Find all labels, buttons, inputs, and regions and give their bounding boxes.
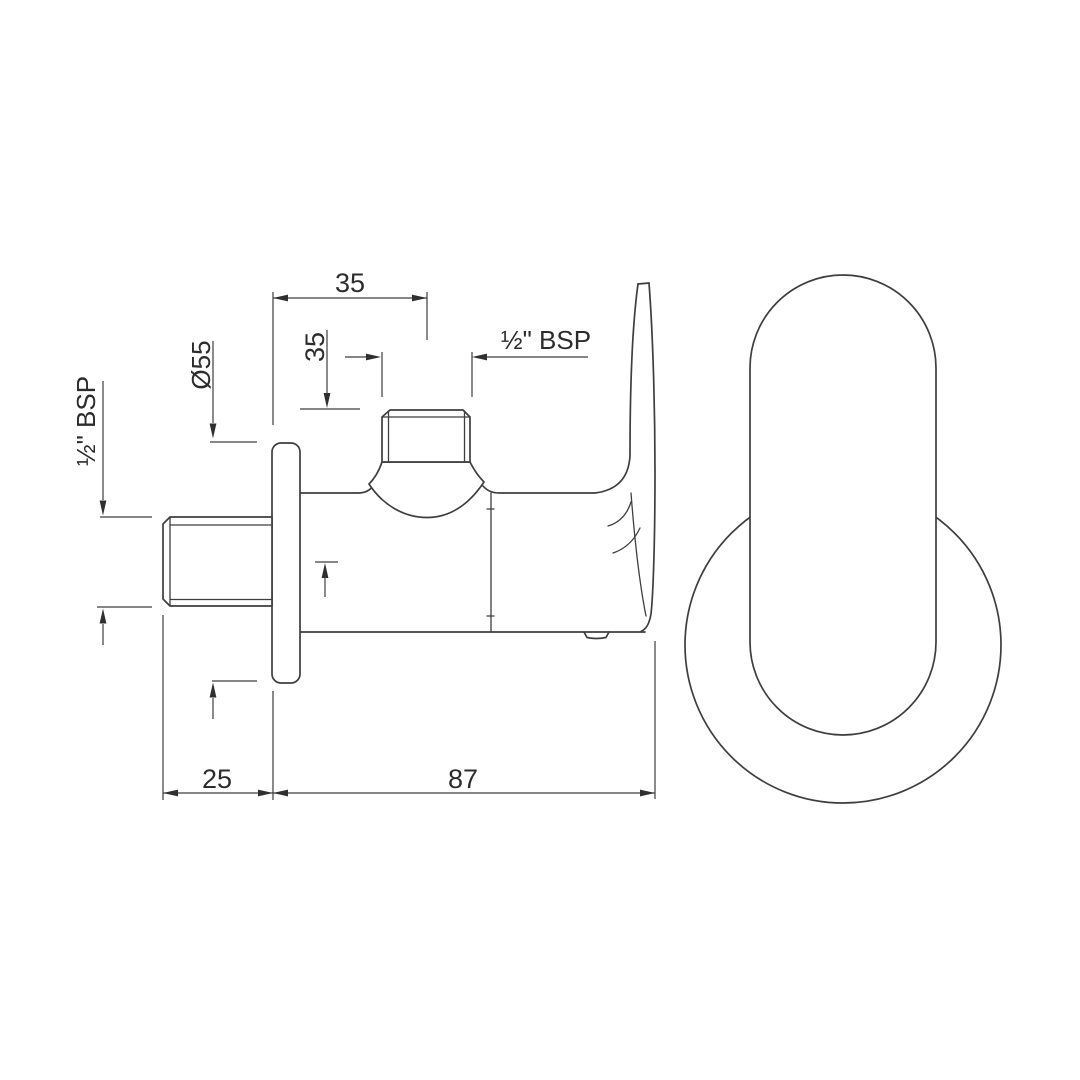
arrow-up-icon	[100, 609, 107, 624]
technical-drawing-page: 35 35 ½" BSP ½" BSP Ø55	[0, 0, 1080, 1080]
callout-outlet-thread: ½" BSP	[345, 325, 591, 397]
callout-inlet-thread: ½" BSP	[71, 376, 152, 645]
arrow-right-icon	[640, 790, 655, 797]
dim-outlet-height-value: 35	[300, 332, 330, 362]
inlet-pipe-outline	[163, 517, 272, 606]
outlet-dome	[369, 462, 484, 518]
arrow-right-icon	[366, 354, 381, 361]
arrow-down-icon	[210, 424, 217, 439]
dim-overall-length-value: 87	[448, 764, 478, 794]
callout-inlet-thread-lines	[97, 381, 152, 645]
handle-tip-edge	[638, 283, 649, 284]
arrow-left-icon	[163, 790, 178, 797]
arrow-left-icon	[273, 790, 288, 797]
body-top-edge-right-and-handle-left-edge	[483, 284, 638, 493]
dimensions: 35 35 ½" BSP ½" BSP Ø55	[71, 268, 655, 800]
dim-flange-diameter-value: Ø55	[186, 340, 216, 389]
dim-bottom-lines	[163, 615, 655, 800]
dim-outlet-height-lines	[300, 330, 360, 597]
dim-top-offset: 35	[273, 268, 427, 425]
dim-top-offset-value: 35	[335, 268, 365, 298]
outlet-port	[369, 410, 484, 518]
handle-right-edge	[641, 283, 655, 632]
handle-base-contour	[631, 493, 646, 616]
dim-wall-clearance-value: 25	[202, 764, 232, 794]
front-view	[685, 275, 1001, 803]
arrow-up-icon	[322, 563, 329, 578]
handle-lever-side	[608, 283, 655, 632]
set-screw-bump	[584, 632, 609, 639]
body-top-edge-left	[300, 486, 373, 493]
arrow-left-icon	[472, 354, 487, 361]
arrow-down-icon	[100, 501, 107, 516]
arrow-right-icon	[258, 790, 273, 797]
wall-flange-side	[272, 443, 300, 683]
arrow-right-icon	[412, 295, 427, 302]
valve-body	[300, 284, 645, 639]
handle-swoosh-arc-1	[608, 502, 631, 526]
angle-valve-drawing: 35 35 ½" BSP ½" BSP Ø55	[0, 0, 1080, 1080]
dim-top-offset-lines	[273, 292, 427, 425]
dim-bottom-lengths: 25 87	[163, 615, 655, 800]
callout-outlet-thread-lines	[345, 352, 588, 397]
outlet-thread	[382, 410, 470, 462]
arrow-up-icon	[210, 683, 217, 698]
arrow-down-icon	[324, 393, 331, 408]
body-joint-line	[487, 493, 494, 632]
callout-inlet-thread-value: ½" BSP	[71, 376, 101, 466]
dim-outlet-height: 35	[300, 330, 360, 597]
handle-pill	[750, 275, 936, 735]
inlet-pipe	[163, 517, 272, 606]
arrow-left-icon	[273, 295, 288, 302]
callout-outlet-thread-value: ½" BSP	[501, 325, 591, 355]
